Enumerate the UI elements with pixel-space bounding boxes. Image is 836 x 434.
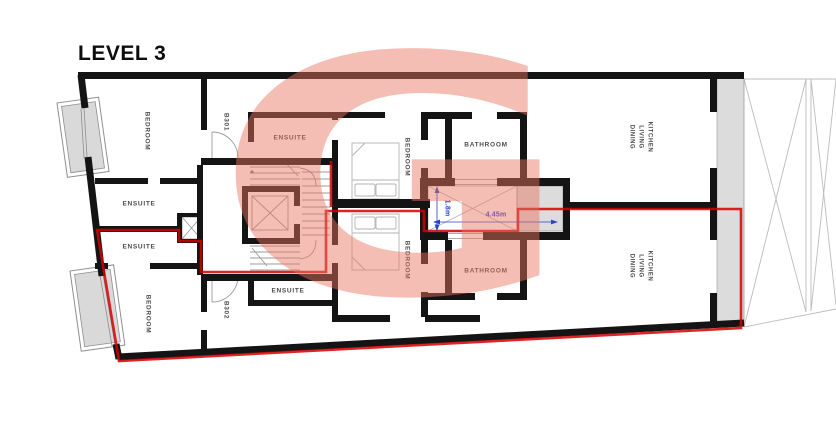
- kitchen-top-line1: KITCHEN: [645, 122, 654, 153]
- room-label-bedroom-top-left: BEDROOM: [144, 112, 151, 151]
- kitchen-bottom-line3: DINING: [627, 251, 636, 282]
- adjacent-structure: [744, 79, 836, 327]
- room-label-ensuite-top-center: ENSUITE: [273, 135, 306, 142]
- kitchen-bottom-line2: LIVING: [636, 251, 645, 282]
- room-label-bedroom-bottom-left: BEDROOM: [145, 295, 152, 334]
- room-label-kitchen-bottom: KITCHEN LIVING DINING: [627, 251, 654, 282]
- floor-plan-page: LEVEL 3 BEDROOM ENSUITE ENSUITE BEDROOM …: [0, 0, 836, 434]
- room-label-ensuite-left-1: ENSUITE: [122, 201, 155, 208]
- dimension-label-depth: 1.8m: [444, 200, 451, 217]
- room-label-bedroom-mid-bottom: BEDROOM: [404, 241, 411, 280]
- room-label-ensuite-left-2: ENSUITE: [122, 244, 155, 251]
- room-label-bathroom-top: BATHROOM: [464, 142, 507, 149]
- room-label-ensuite-bottom-center: ENSUITE: [271, 288, 304, 295]
- balcony-lower: [70, 265, 125, 351]
- elevator: [242, 186, 300, 244]
- dimension-label-width: 4.45m: [486, 212, 507, 219]
- page-title: LEVEL 3: [78, 42, 166, 66]
- unit-label-b301: B301: [223, 113, 230, 131]
- kitchen-bottom-line1: KITCHEN: [645, 251, 654, 282]
- room-label-bedroom-mid-top: BEDROOM: [404, 138, 411, 177]
- lightwell: [428, 186, 517, 231]
- room-label-kitchen-top: KITCHEN LIVING DINING: [627, 122, 654, 153]
- room-label-bathroom-bottom: BATHROOM: [464, 268, 507, 275]
- unit-label-b302: B302: [223, 301, 230, 319]
- kitchen-top-line2: LIVING: [636, 122, 645, 153]
- kitchen-top-line3: DINING: [627, 122, 636, 153]
